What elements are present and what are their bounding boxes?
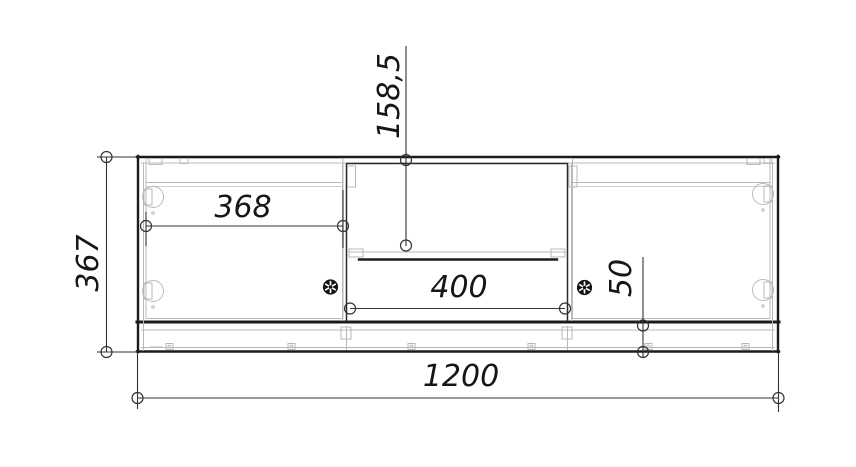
middle-shelf — [348, 249, 566, 260]
dim-label-overall-height: 367 — [71, 234, 106, 291]
hinge-plate — [144, 283, 152, 299]
handle-knob-icon — [577, 280, 592, 295]
cabinet — [137, 156, 779, 352]
corner-connector-left — [149, 159, 162, 165]
left-door — [146, 159, 343, 319]
dim-label-drawer-width: 400 — [430, 270, 487, 305]
dim-door-width: 368 — [141, 190, 349, 248]
cabinet-carcass — [137, 156, 779, 352]
dim-niche-height: 158,5 — [372, 46, 412, 251]
hinge-dot — [152, 212, 154, 214]
hinge-plate — [764, 282, 772, 298]
dim-label-door-width: 368 — [214, 190, 271, 225]
furniture-elevation-drawing: 367 368 158,5 400 — [0, 0, 856, 467]
hinge-plate — [764, 186, 772, 202]
hinge-plate — [144, 189, 152, 205]
drawing-canvas: 367 368 158,5 400 — [0, 0, 856, 467]
dim-plinth-height: 50 — [604, 257, 649, 358]
dim-label-overall-width: 1200 — [423, 359, 499, 394]
dim-drawer-width: 400 — [345, 270, 571, 314]
hinge-dot — [152, 306, 154, 308]
hinge-dot — [762, 305, 764, 307]
plinth — [141, 326, 775, 350]
dim-label-niche-height: 158,5 — [372, 53, 407, 139]
knob-core — [329, 285, 332, 288]
plinth-feet — [150, 344, 749, 350]
dim-overall-height: 367 — [71, 152, 138, 358]
shelf-support-left — [349, 249, 363, 257]
handle-knob-icon — [323, 279, 338, 294]
dim-overall-width: 1200 — [132, 353, 784, 412]
dimensions: 367 368 158,5 400 — [71, 46, 784, 412]
center-divider-left — [343, 163, 356, 321]
shelf-support-right — [551, 249, 565, 257]
knob-core — [583, 286, 586, 289]
hinge-dot — [762, 209, 764, 211]
right-door — [573, 159, 771, 319]
divider-bracket — [348, 166, 356, 187]
corner-connector-right — [747, 159, 760, 165]
dim-label-plinth-height: 50 — [604, 259, 639, 297]
